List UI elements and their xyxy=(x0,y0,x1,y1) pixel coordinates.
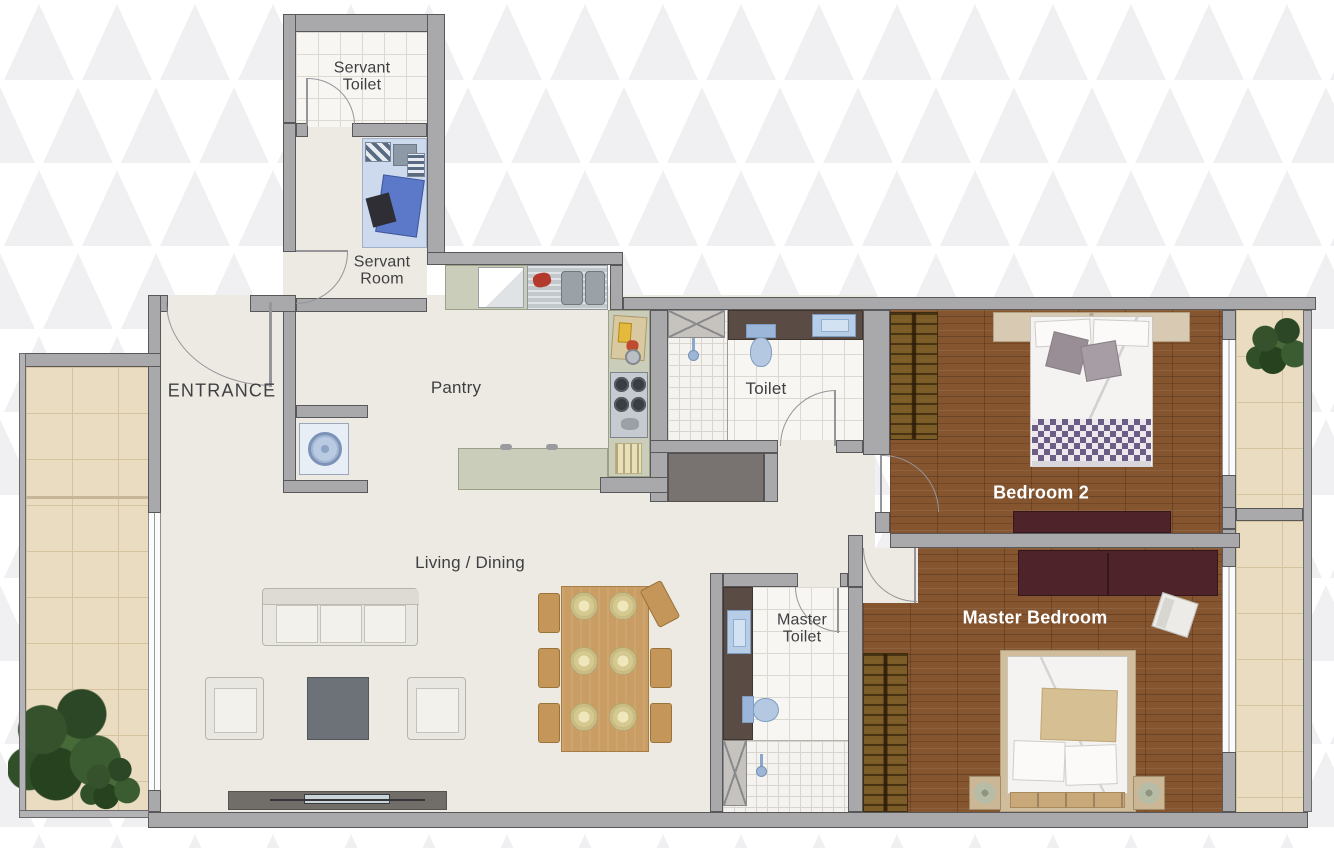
dining-chair xyxy=(650,648,672,688)
armchair-cushion xyxy=(214,688,257,733)
dining-chair xyxy=(538,703,560,743)
wall-segment xyxy=(623,297,1316,310)
wall-segment xyxy=(283,480,368,493)
stove-burner xyxy=(614,397,629,412)
tv-console xyxy=(228,791,447,810)
dining-chair xyxy=(650,703,672,743)
wall-segment xyxy=(296,405,368,418)
sliding-glass-door xyxy=(1222,340,1236,475)
door-leaf xyxy=(880,455,882,512)
wall-segment xyxy=(19,353,161,367)
kitchen-island xyxy=(458,448,608,490)
room-label-living-dining: Living / Dining xyxy=(415,554,525,572)
bed-pillow xyxy=(407,153,425,177)
washing-machine xyxy=(299,423,349,475)
kitchen-small-sink xyxy=(625,349,641,365)
sliding-glass-door xyxy=(148,513,161,790)
floor-balcony-right-bottom xyxy=(1236,521,1303,812)
wall-segment xyxy=(710,573,723,812)
stove-burner xyxy=(614,377,629,392)
kitchen-sink-unit xyxy=(527,265,608,310)
door-arc-entrance xyxy=(166,302,272,386)
bed-bedroom-2 xyxy=(1030,316,1153,467)
wall-segment xyxy=(650,310,668,502)
stove-burner xyxy=(631,397,646,412)
toilet-wash-basin xyxy=(812,314,856,337)
dresser-divider xyxy=(1107,553,1109,595)
sink-bowl xyxy=(561,271,583,305)
toilet-wc-tank xyxy=(746,324,776,338)
door-leaf xyxy=(834,390,836,446)
balcony-plant xyxy=(80,758,142,816)
door-leaf xyxy=(269,302,272,387)
dining-chair xyxy=(538,593,560,633)
wardrobe-bedroom-2 xyxy=(890,312,938,440)
place-setting xyxy=(570,647,598,675)
door-leaf xyxy=(296,250,348,252)
wardrobe-master xyxy=(863,653,908,812)
wall-segment xyxy=(848,587,863,812)
wall-segment xyxy=(600,477,668,493)
headboard-master xyxy=(1010,792,1125,808)
wall-segment xyxy=(148,790,161,812)
wall-segment xyxy=(1222,310,1236,340)
master-shower-door xyxy=(723,740,747,806)
room-label-master-toilet: Master Toilet xyxy=(777,612,827,647)
sofa-cushion xyxy=(276,605,318,643)
dresser-master xyxy=(1018,550,1218,596)
wall-segment xyxy=(836,440,863,453)
gas-stove xyxy=(610,372,648,438)
decor-pillow xyxy=(1080,340,1122,382)
kitchen-tray xyxy=(615,443,642,474)
sink-bowl xyxy=(585,271,605,305)
servant-bed xyxy=(362,138,427,248)
dresser-bedroom-2 xyxy=(1013,511,1171,533)
wall-segment xyxy=(352,123,427,137)
door-leaf xyxy=(914,548,916,603)
kitchen-item-red xyxy=(532,271,553,288)
wall-segment xyxy=(283,14,445,32)
master-wc-bowl xyxy=(753,698,779,722)
door-arc-bedroom-2 xyxy=(882,455,939,512)
place-setting xyxy=(570,703,598,731)
bed-pillow xyxy=(1064,744,1117,786)
room-label-toilet: Toilet xyxy=(746,380,787,398)
door-arc-servant-room xyxy=(296,252,348,304)
wall-segment xyxy=(19,810,149,818)
island-tap xyxy=(546,444,558,450)
place-setting xyxy=(609,703,637,731)
room-label-entrance: ENTRANCE xyxy=(168,381,277,400)
table-lamp xyxy=(1138,782,1160,804)
wall-segment xyxy=(764,453,778,502)
room-label-servant-room: Servant Room xyxy=(354,254,411,289)
sofa-back xyxy=(263,589,419,605)
washing-machine-drum xyxy=(308,432,342,466)
door-arc-toilet xyxy=(780,390,836,446)
armchair xyxy=(205,677,264,740)
room-label-pantry: Pantry xyxy=(431,379,481,397)
sofa-cushion xyxy=(320,605,362,643)
room-label-master-bedroom: Master Bedroom xyxy=(963,608,1108,627)
wall-segment xyxy=(283,304,296,493)
shower-head xyxy=(756,766,767,777)
wall-segment xyxy=(427,252,623,265)
bed-master xyxy=(1007,656,1128,794)
door-leaf xyxy=(306,78,308,126)
wall-segment xyxy=(19,353,26,815)
wall-segment xyxy=(875,512,890,533)
chair-back xyxy=(1156,597,1175,629)
balcony-plant xyxy=(1246,318,1310,382)
master-wash-basin xyxy=(727,610,751,654)
place-setting xyxy=(609,592,637,620)
wall-segment xyxy=(610,265,623,310)
dining-chair xyxy=(538,648,560,688)
door-arc-master-bedroom xyxy=(863,548,917,602)
bed-pillow xyxy=(1012,740,1065,782)
wall-segment xyxy=(148,812,1308,828)
wall-segment xyxy=(148,295,161,513)
tv-stand xyxy=(270,799,425,801)
room-label-servant-toilet: Servant Toilet xyxy=(334,60,391,95)
refrigerator xyxy=(478,267,524,308)
wall-segment xyxy=(427,14,445,265)
armchair-cushion xyxy=(416,688,459,733)
bed-pillow xyxy=(365,142,391,162)
wall-segment xyxy=(283,123,296,252)
armchair xyxy=(407,677,466,740)
wall-segment xyxy=(1222,752,1236,812)
door-leaf xyxy=(837,588,839,633)
wall-segment xyxy=(1303,310,1312,812)
room-label-bedroom-2: Bedroom 2 xyxy=(993,483,1089,502)
wall-segment xyxy=(1222,475,1236,508)
place-setting xyxy=(609,647,637,675)
wall-segment xyxy=(650,440,778,453)
wall-segment xyxy=(848,535,863,587)
bed-check-blanket xyxy=(1032,419,1151,461)
shower-tray xyxy=(668,310,725,338)
wall-segment xyxy=(890,533,1240,548)
wall-segment xyxy=(723,573,798,587)
bed-blanket xyxy=(1040,688,1118,743)
floor-plan-canvas: Servant Toilet Servant Room ENTRANCE Pan… xyxy=(0,0,1334,848)
wall-segment xyxy=(863,310,890,455)
service-shaft xyxy=(668,453,764,502)
toilet-wc-bowl xyxy=(750,337,772,367)
stove-panel xyxy=(621,418,639,430)
table-lamp xyxy=(974,782,996,804)
coffee-table xyxy=(307,677,369,740)
stove-burner xyxy=(631,377,646,392)
wall-segment xyxy=(1236,508,1303,521)
island-tap xyxy=(500,444,512,450)
wall-segment xyxy=(283,14,296,123)
basin-bowl xyxy=(821,319,849,332)
bed-foot-strip xyxy=(1032,461,1151,467)
sofa xyxy=(262,588,418,646)
sofa-cushion xyxy=(364,605,406,643)
wall-segment xyxy=(840,573,848,587)
balcony-left-divider xyxy=(26,496,148,499)
sliding-glass-door xyxy=(1222,567,1236,752)
basin-bowl xyxy=(733,619,746,647)
shower-head xyxy=(688,350,699,361)
place-setting xyxy=(570,592,598,620)
